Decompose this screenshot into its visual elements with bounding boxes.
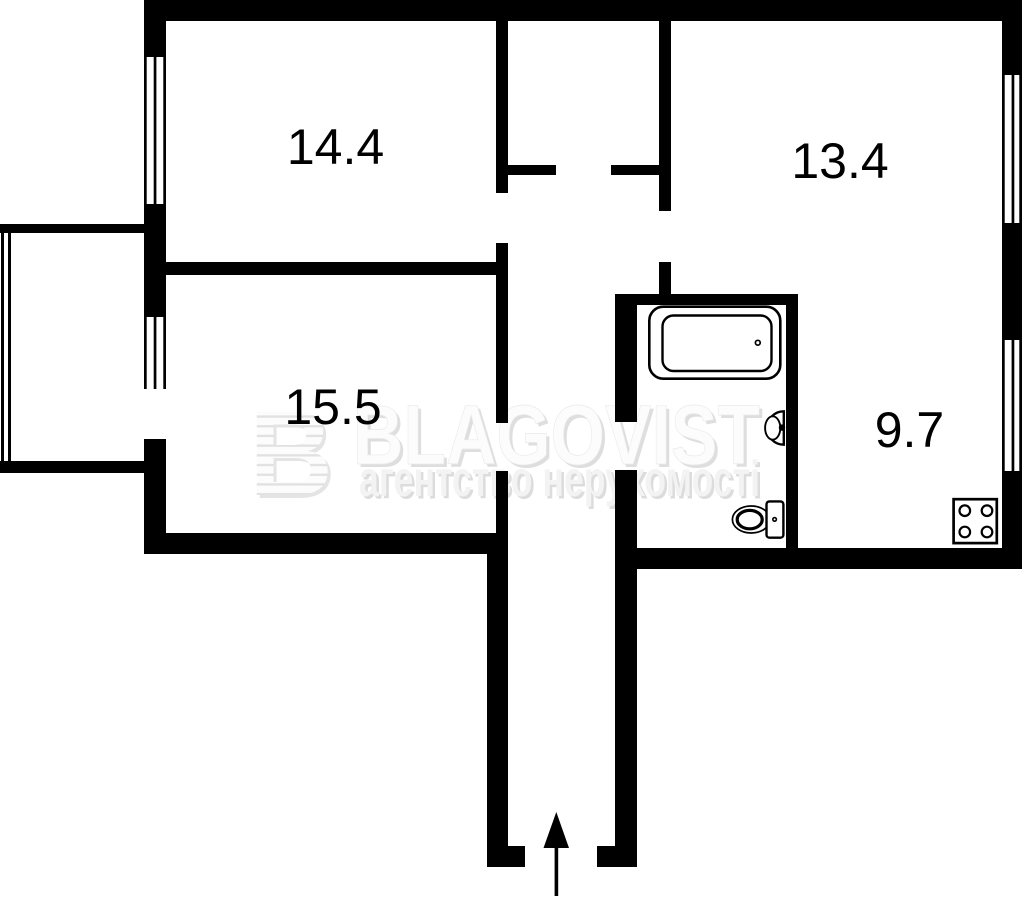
- svg-text:15.5: 15.5: [284, 379, 381, 435]
- svg-text:9.7: 9.7: [875, 402, 945, 458]
- svg-text:агентство нерухомості: агентство нерухомості: [359, 451, 760, 507]
- svg-text:14.4: 14.4: [287, 119, 384, 175]
- svg-text:13.4: 13.4: [791, 133, 888, 189]
